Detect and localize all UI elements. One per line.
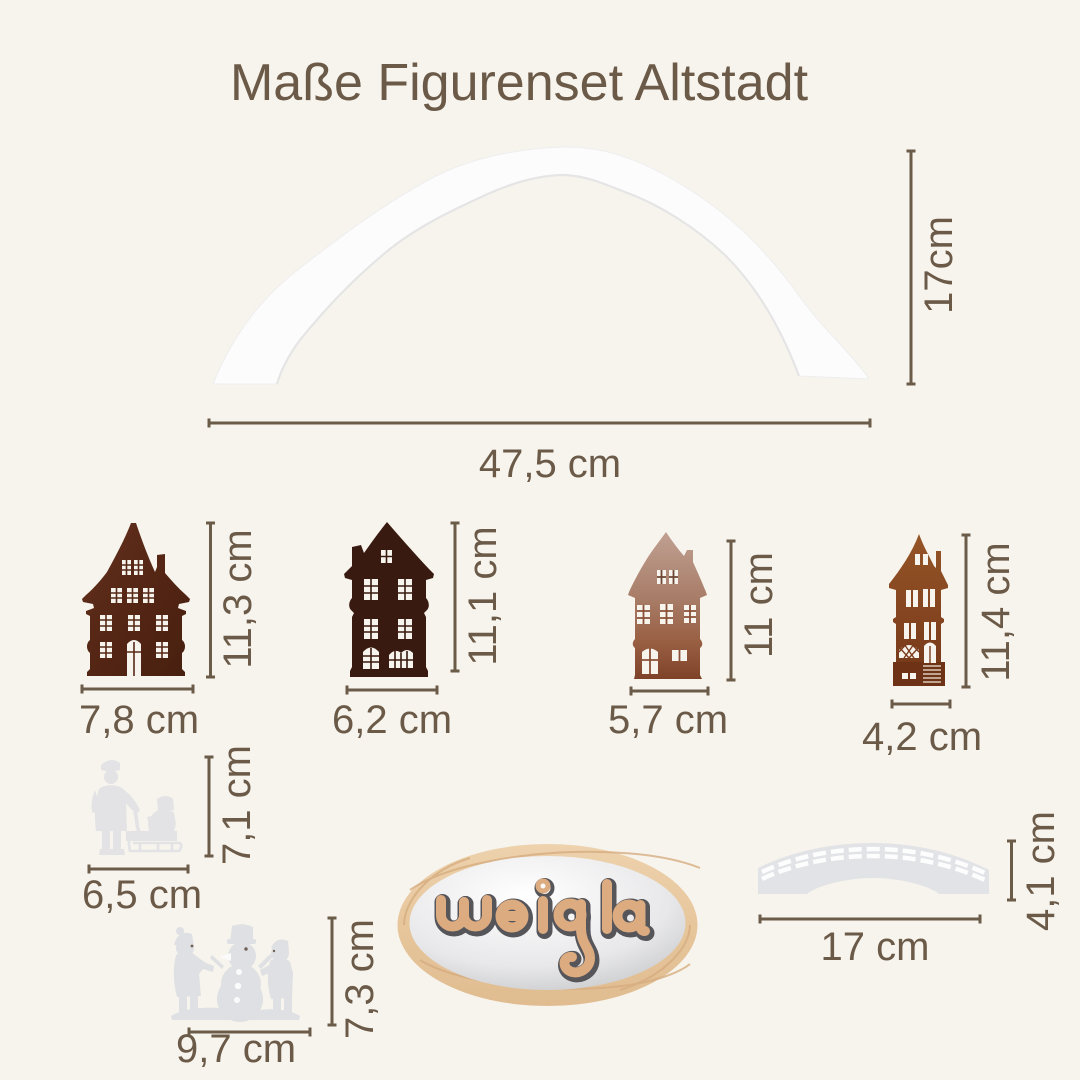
- svg-text:7,1 cm: 7,1 cm: [215, 745, 259, 865]
- svg-text:11 cm: 11 cm: [737, 552, 781, 658]
- svg-text:Maße Figurenset Altstadt: Maße Figurenset Altstadt: [230, 54, 809, 112]
- svg-text:6,5 cm: 6,5 cm: [82, 873, 202, 917]
- svg-text:4,2 cm: 4,2 cm: [862, 715, 982, 759]
- svg-text:17 cm: 17 cm: [821, 925, 930, 969]
- svg-text:4,1 cm: 4,1 cm: [1019, 811, 1063, 931]
- svg-text:7,8 cm: 7,8 cm: [79, 698, 199, 742]
- svg-text:11,4 cm: 11,4 cm: [974, 542, 1018, 681]
- svg-text:11,1 cm: 11,1 cm: [461, 526, 505, 665]
- svg-text:6,2 cm: 6,2 cm: [332, 698, 452, 742]
- svg-text:7,3 cm: 7,3 cm: [338, 919, 382, 1039]
- svg-text:5,7 cm: 5,7 cm: [608, 698, 728, 742]
- svg-text:47,5 cm: 47,5 cm: [479, 442, 621, 486]
- svg-text:9,7 cm: 9,7 cm: [176, 1027, 296, 1071]
- svg-text:17cm: 17cm: [917, 216, 961, 314]
- svg-text:11,3 cm: 11,3 cm: [216, 529, 260, 668]
